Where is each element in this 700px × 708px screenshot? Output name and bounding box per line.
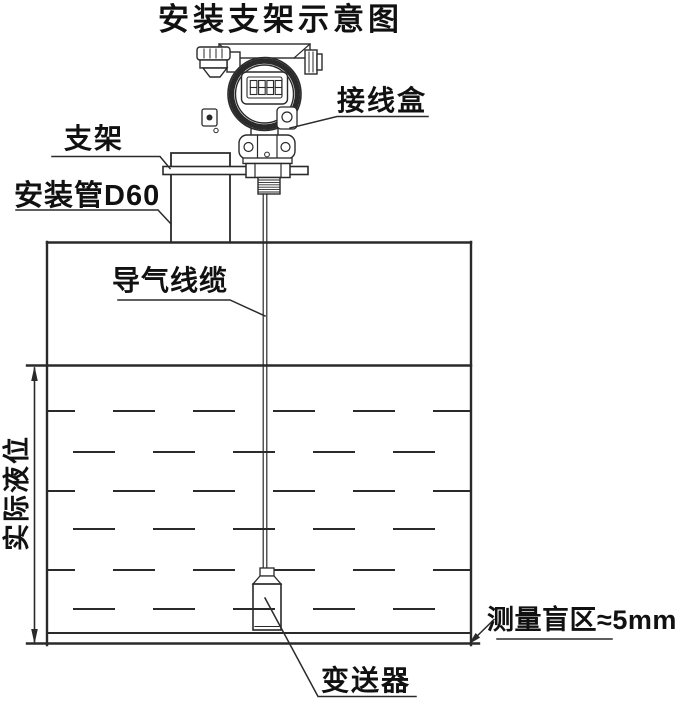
bolt-hole-icon	[281, 143, 290, 152]
leader-junction-box	[290, 117, 428, 129]
leader-air-cable	[118, 300, 265, 316]
center-hole-icon	[265, 152, 270, 157]
label-mounting-pipe-d60: 安装管D60	[14, 181, 160, 213]
probe-body	[253, 584, 281, 630]
label-blind-zone: 测量盲区≈5mm	[487, 606, 677, 636]
air-guide-cable	[263, 194, 267, 568]
cable-gland-cap	[197, 47, 230, 60]
label-junction-box: 接线盒	[337, 86, 427, 117]
bolt-hole-icon	[244, 143, 253, 152]
liquid	[27, 366, 471, 610]
label-actual-liquid-level: 实际液位	[3, 433, 33, 553]
label-bracket: 支架	[64, 124, 124, 155]
cable-gland-taper	[203, 68, 227, 77]
arrow-up-icon	[31, 366, 38, 381]
cable-gland-mid	[200, 60, 227, 68]
side-connector	[305, 50, 317, 74]
arrow-down-icon	[31, 629, 38, 644]
diagram-installation-bracket: 安装支架示意图 接线盒 支架 安装管D60 导气线缆 实际液位 测量盲区≈5mm…	[0, 0, 700, 708]
ear-hole-icon	[282, 112, 292, 122]
hex-nut	[246, 164, 290, 178]
page-title: 安装支架示意图	[158, 3, 403, 37]
probe-shoulder	[253, 576, 281, 584]
connector-end	[317, 54, 322, 70]
probe-neck	[260, 568, 274, 576]
leader-bracket	[52, 157, 170, 169]
label-air-guide-cable: 导气线缆	[112, 266, 228, 297]
flange-band	[243, 158, 292, 164]
screw-dot-icon	[207, 115, 213, 121]
label-transmitter: 变送器	[321, 666, 411, 697]
small-screw-icon	[214, 128, 218, 132]
